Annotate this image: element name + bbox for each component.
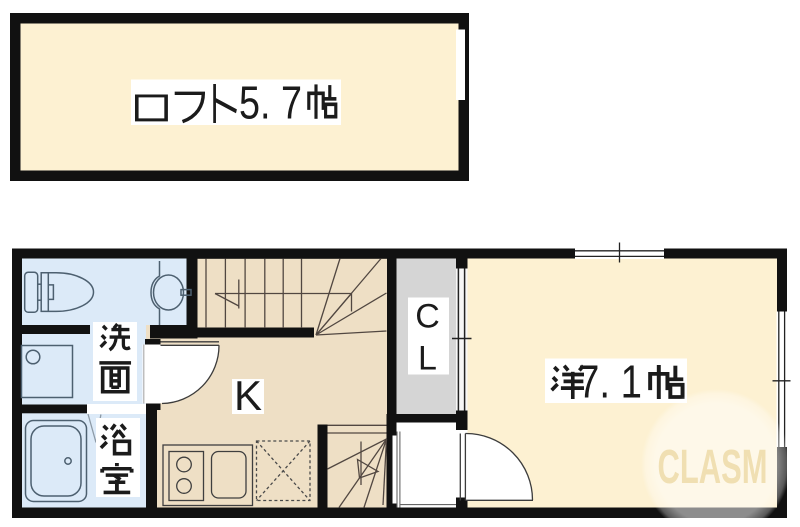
svg-text:K: K (234, 372, 262, 419)
svg-text:L: L (418, 340, 437, 378)
svg-text:5. 7: 5. 7 (239, 77, 302, 129)
svg-text:7. 1: 7. 1 (578, 356, 642, 408)
svg-text:CLASM: CLASM (658, 441, 768, 494)
svg-text:C: C (415, 298, 440, 336)
